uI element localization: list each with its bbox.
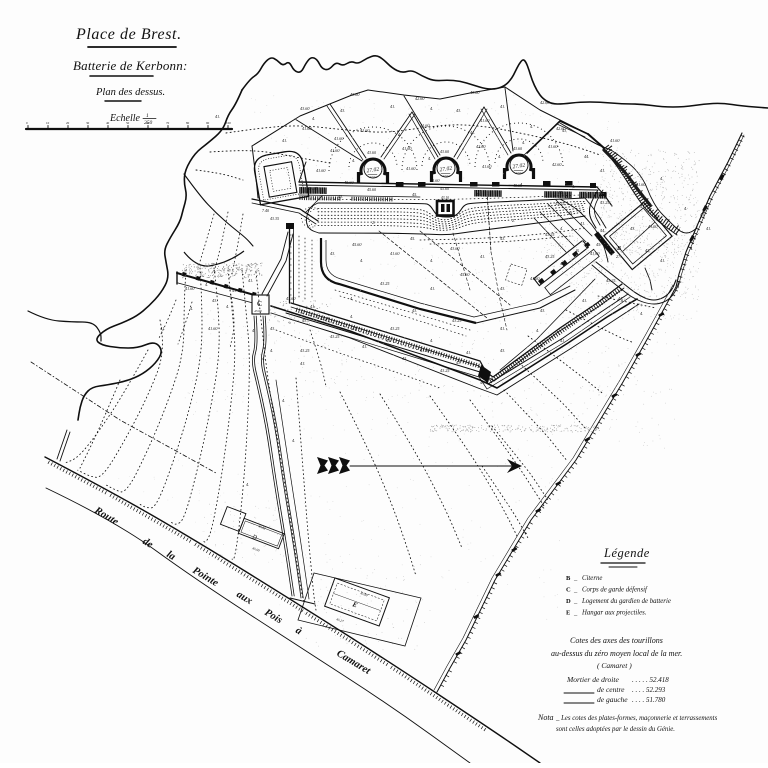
svg-text:au-dessus du zéro moyen local: au-dessus du zéro moyen local de la mer. (551, 649, 682, 658)
svg-text:4.: 4. (205, 282, 208, 287)
svg-text:4.: 4. (560, 261, 563, 266)
svg-text:D: D (566, 598, 571, 605)
svg-text:Nota: Nota (537, 713, 554, 722)
svg-text:C: C (566, 587, 571, 594)
svg-text:43.25: 43.25 (440, 368, 449, 373)
svg-text:de gauche: de gauche (597, 695, 628, 704)
svg-text:Plan des dessus.: Plan des dessus. (95, 87, 165, 98)
svg-text:41.60: 41.60 (302, 126, 312, 131)
svg-text:27.02: 27.02 (370, 175, 377, 179)
svg-text:45.60: 45.60 (367, 187, 376, 192)
svg-text:41.60: 41.60 (548, 144, 558, 149)
svg-text:43.: 43. (562, 128, 567, 133)
svg-text:41.60: 41.60 (420, 123, 430, 128)
svg-text:45.: 45. (410, 236, 415, 241)
svg-text:90: 90 (206, 121, 210, 125)
svg-text:4.: 4. (252, 328, 255, 333)
svg-text:41.60: 41.60 (480, 118, 490, 123)
svg-text:B.: B. (576, 248, 580, 253)
svg-text:45.60: 45.60 (460, 272, 470, 277)
svg-text:41.60: 41.60 (482, 164, 492, 169)
svg-text:4.: 4. (572, 184, 575, 189)
svg-text:41.60: 41.60 (590, 251, 600, 256)
svg-text:Corps de garde défensif: Corps de garde défensif (582, 587, 648, 594)
svg-text:4.: 4. (270, 348, 273, 353)
svg-text:Hangar aux projectiles.: Hangar aux projectiles. (581, 610, 647, 617)
svg-text:4.: 4. (398, 132, 401, 137)
svg-text:4.: 4. (350, 314, 353, 319)
svg-text:4.: 4. (262, 356, 265, 361)
svg-text:43.25: 43.25 (320, 316, 329, 321)
svg-text:43.25: 43.25 (308, 186, 317, 191)
svg-text:_ Les cotes des plates-formes,: _ Les cotes des plates-formes, maçonneri… (555, 715, 718, 722)
svg-text:43.: 43. (330, 251, 335, 256)
svg-text:41.: 41. (248, 278, 253, 283)
svg-text:41.: 41. (700, 212, 705, 217)
svg-text:4.: 4. (350, 296, 353, 301)
svg-text:41.: 41. (232, 288, 237, 293)
svg-text:43.: 43. (476, 192, 481, 197)
svg-text:43.60: 43.60 (367, 150, 376, 155)
svg-text:41.60: 41.60 (208, 326, 218, 331)
svg-text:4.: 4. (560, 226, 563, 231)
svg-text:Echelle: Echelle (109, 113, 141, 124)
svg-text:43.10: 43.10 (441, 196, 449, 200)
svg-text:43.25: 43.25 (545, 232, 554, 237)
svg-text:43.25: 43.25 (300, 348, 309, 353)
svg-text:43.25: 43.25 (606, 278, 615, 283)
svg-text:41.: 41. (600, 168, 605, 173)
svg-text:41.: 41. (430, 286, 435, 291)
svg-text:43.: 43. (412, 308, 417, 313)
svg-text:Cotes des axes des tourillons: Cotes des axes des tourillons (570, 636, 663, 645)
svg-text:43.60: 43.60 (470, 90, 480, 95)
svg-text:43.: 43. (340, 108, 345, 113)
svg-text:45.60: 45.60 (344, 180, 354, 185)
svg-text:43.: 43. (500, 286, 505, 291)
svg-text:43.60: 43.60 (450, 246, 460, 251)
svg-text:4.: 4. (690, 246, 693, 251)
svg-text:2.: 2. (372, 220, 375, 225)
svg-text:43.: 43. (500, 236, 505, 241)
svg-text:de centre: de centre (597, 685, 625, 694)
svg-text:41.: 41. (215, 114, 220, 119)
svg-text:4.: 4. (684, 206, 687, 211)
svg-text:43.: 43. (270, 326, 275, 331)
svg-text:41.: 41. (310, 304, 315, 309)
svg-text:4.: 4. (428, 156, 431, 161)
svg-text:41.60: 41.60 (402, 146, 412, 151)
svg-text:43.: 43. (645, 248, 650, 253)
svg-text:41.60: 41.60 (185, 286, 195, 291)
svg-text:4.: 4. (530, 124, 533, 129)
svg-text:4.: 4. (292, 438, 295, 443)
svg-text:41.: 41. (580, 221, 585, 226)
svg-text:43.25: 43.25 (452, 318, 461, 323)
svg-text:. . . . 51.780: . . . . 51.780 (632, 696, 666, 704)
svg-text:Logement du gardien de batteri: Logement du gardien de batterie (581, 598, 671, 605)
svg-text:43.: 43. (402, 356, 407, 361)
svg-text:7.40: 7.40 (262, 208, 269, 213)
svg-text:( Camaret ): ( Camaret ) (597, 661, 632, 670)
svg-text:. . . . . 52.418: . . . . . 52.418 (632, 676, 669, 684)
svg-text:4.: 4. (360, 258, 363, 263)
svg-text:43.: 43. (456, 360, 461, 365)
svg-text:27.: 27. (616, 254, 621, 259)
svg-text:41.60: 41.60 (530, 276, 540, 281)
svg-text:45.60: 45.60 (352, 242, 362, 247)
svg-text:43.60: 43.60 (350, 92, 360, 97)
svg-text:E: E (566, 610, 570, 617)
svg-text:41.60: 41.60 (390, 251, 400, 256)
svg-text:41.: 41. (706, 226, 711, 231)
svg-text:41.: 41. (300, 361, 305, 366)
svg-text:43.35: 43.35 (270, 216, 279, 221)
svg-text:4.: 4. (522, 140, 525, 145)
svg-text:41.: 41. (480, 380, 485, 385)
svg-text:4.: 4. (226, 304, 229, 309)
svg-text:41.60: 41.60 (360, 128, 370, 133)
svg-text:41.: 41. (160, 326, 165, 331)
svg-text:20: 20 (66, 121, 70, 125)
svg-text:27.02: 27.02 (516, 171, 523, 175)
svg-text:50: 50 (126, 121, 130, 125)
svg-text:Place de Brest.: Place de Brest. (75, 26, 182, 43)
svg-text:43.25: 43.25 (380, 281, 389, 286)
svg-text:60: 60 (146, 121, 150, 125)
svg-text:4.: 4. (395, 182, 398, 187)
svg-text:41.: 41. (466, 350, 471, 355)
svg-text:10: 10 (46, 121, 50, 125)
svg-text:43.25: 43.25 (600, 200, 609, 205)
svg-text:43.25: 43.25 (390, 326, 399, 331)
svg-text:43.: 43. (630, 226, 635, 231)
svg-text:4.: 4. (430, 106, 433, 111)
svg-text:4.: 4. (498, 154, 501, 159)
svg-text:41.: 41. (390, 104, 395, 109)
svg-text:44.: 44. (600, 228, 605, 233)
svg-text:45.: 45. (558, 190, 563, 195)
svg-text:43.: 43. (456, 108, 461, 113)
svg-text:4.: 4. (520, 182, 523, 187)
svg-text:41.: 41. (560, 338, 565, 343)
svg-text:43.60: 43.60 (513, 146, 522, 151)
svg-text:43.: 43. (386, 338, 391, 343)
svg-text:2.: 2. (512, 218, 515, 223)
svg-text:45.60: 45.60 (440, 186, 449, 191)
svg-text:41.60: 41.60 (420, 348, 430, 353)
svg-text:41.60: 41.60 (334, 136, 344, 141)
svg-text:41.: 41. (470, 130, 475, 135)
svg-text:45.: 45. (412, 192, 417, 197)
svg-text:41.: 41. (660, 258, 665, 263)
svg-text:B: B (566, 575, 571, 582)
svg-text:4.: 4. (312, 116, 315, 121)
svg-text:sont celles adoptées par le de: sont celles adoptées par le dessin du Gé… (556, 726, 675, 733)
svg-text:41.60: 41.60 (330, 148, 340, 153)
svg-text:41.: 41. (480, 254, 485, 259)
svg-text:41.60: 41.60 (636, 182, 646, 187)
svg-text:41.60: 41.60 (610, 138, 620, 143)
svg-text:43.: 43. (302, 318, 307, 323)
svg-text:70: 70 (166, 121, 170, 125)
svg-text:41.: 41. (500, 104, 505, 109)
svg-text:41.: 41. (282, 138, 287, 143)
svg-text:. . . . 52.293: . . . . 52.293 (632, 686, 666, 694)
svg-text:45.: 45. (596, 242, 601, 247)
svg-text:44.: 44. (584, 154, 589, 159)
svg-text:43.: 43. (640, 204, 645, 209)
svg-text:Batterie de Kerbonn:: Batterie de Kerbonn: (73, 58, 187, 73)
svg-text:41.: 41. (618, 296, 623, 301)
svg-text:43.: 43. (212, 298, 217, 303)
svg-text:43.60: 43.60 (440, 149, 449, 154)
svg-text:41.: 41. (352, 326, 357, 331)
svg-text:41.60: 41.60 (316, 168, 326, 173)
svg-text:43.: 43. (500, 348, 505, 353)
svg-text:41.: 41. (362, 344, 367, 349)
svg-text:4.: 4. (282, 398, 285, 403)
svg-text:43.60: 43.60 (300, 106, 310, 111)
svg-text:43.: 43. (520, 358, 525, 363)
svg-text:4.: 4. (640, 311, 643, 316)
svg-text:43.25: 43.25 (330, 334, 339, 339)
svg-text:80: 80 (186, 121, 190, 125)
svg-text:43.60: 43.60 (254, 309, 262, 313)
svg-text:Légende: Légende (603, 546, 650, 560)
svg-text:41.: 41. (582, 298, 587, 303)
svg-text:42.60: 42.60 (415, 96, 425, 101)
svg-text:43.60: 43.60 (286, 296, 296, 301)
svg-text:4.: 4. (660, 176, 663, 181)
svg-text:42.60: 42.60 (552, 162, 562, 167)
svg-text:4.: 4. (246, 482, 249, 487)
svg-text:43.: 43. (338, 194, 343, 199)
svg-text:43.: 43. (568, 211, 573, 216)
svg-text:4.: 4. (430, 258, 433, 263)
svg-text:41.60: 41.60 (406, 166, 416, 171)
svg-text:30: 30 (86, 121, 90, 125)
svg-text:27.02: 27.02 (443, 174, 450, 178)
svg-text:42.60: 42.60 (476, 144, 486, 149)
svg-text:43.25: 43.25 (545, 254, 554, 259)
svg-text:4.: 4. (352, 158, 355, 163)
svg-text:100: 100 (226, 121, 231, 125)
svg-text:4.: 4. (190, 306, 193, 311)
svg-text:41.: 41. (500, 326, 505, 331)
svg-text:27.: 27. (655, 214, 660, 219)
svg-text:43.: 43. (540, 308, 545, 313)
svg-text:40: 40 (106, 121, 110, 125)
svg-text:41.25: 41.25 (555, 201, 564, 206)
svg-text:Mortier de droite: Mortier de droite (566, 675, 619, 684)
svg-text:42.60: 42.60 (540, 100, 550, 105)
svg-text:45.60: 45.60 (430, 178, 440, 183)
svg-text:41.60: 41.60 (648, 224, 658, 229)
svg-text:4.: 4. (430, 338, 433, 343)
svg-text:4.: 4. (536, 328, 539, 333)
svg-text:Citerne: Citerne (582, 575, 602, 582)
